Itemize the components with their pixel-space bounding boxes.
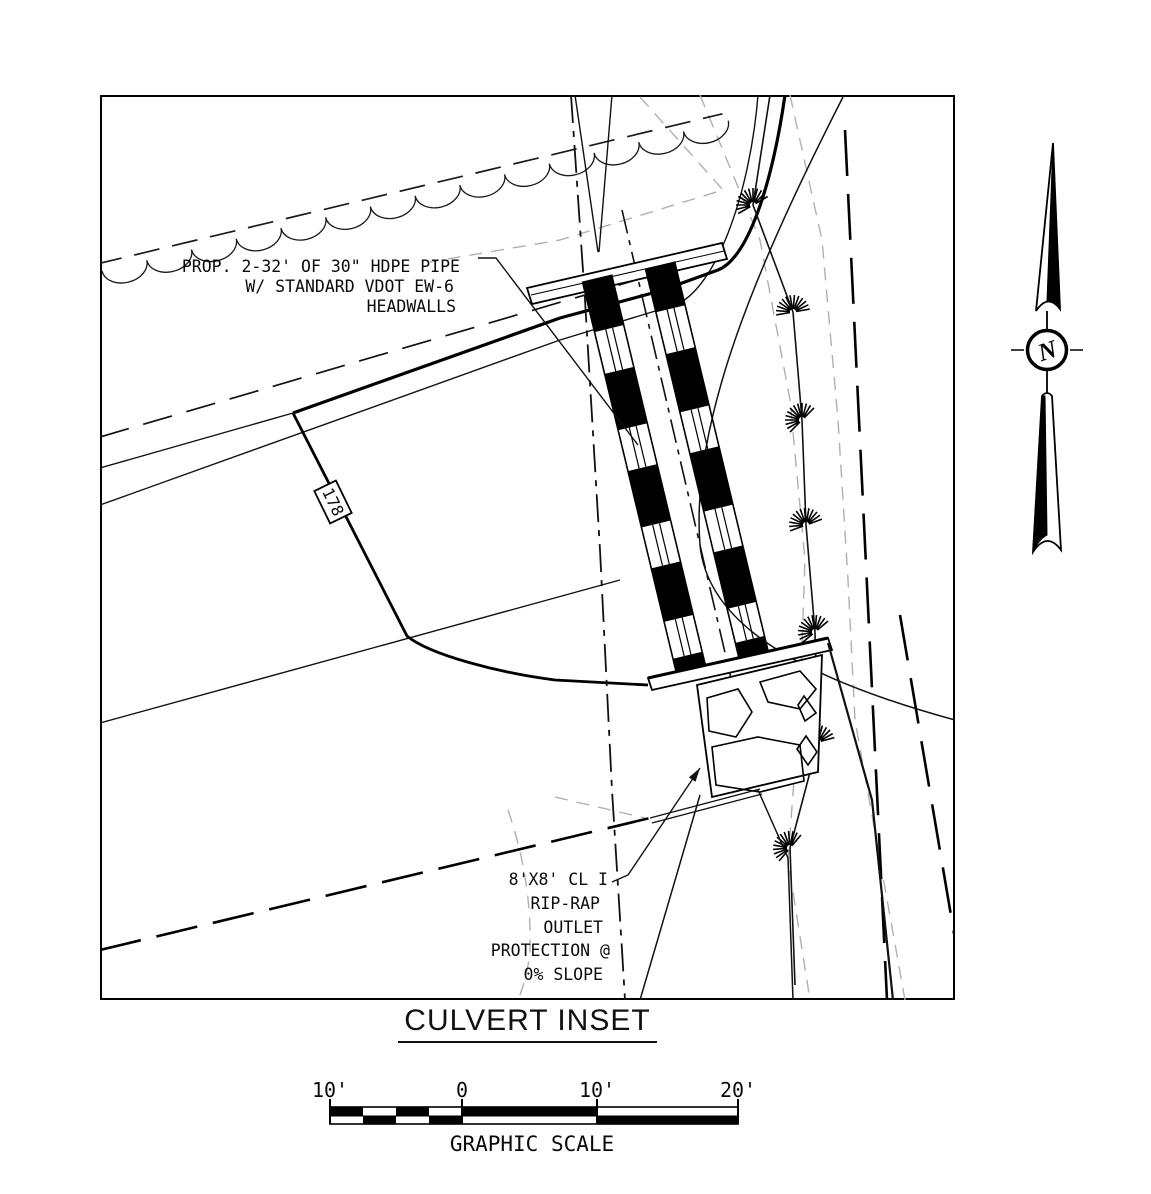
- north-needle-top: [1036, 143, 1060, 311]
- scale-tick-label-2: 10': [579, 1078, 615, 1102]
- edge-lines: [100, 95, 758, 723]
- riprap-label-line4: PROTECTION @: [491, 941, 610, 960]
- plan-view: PROP. 2-32' OF 30" HDPE PIPE W/ STANDARD…: [100, 95, 955, 1000]
- existing-contours-gray: [430, 95, 905, 1000]
- riprap-label-line1: 8'X8' CL I: [509, 870, 608, 889]
- stream-centerline: [571, 95, 625, 1000]
- scale-tick-label-0: 10': [312, 1078, 348, 1102]
- culvert-inset-sheet: PROP. 2-32' OF 30" HDPE PIPE W/ STANDARD…: [0, 0, 1151, 1194]
- annotations: PROP. 2-32' OF 30" HDPE PIPE W/ STANDARD…: [182, 257, 610, 984]
- compass-circle: N: [1011, 331, 1083, 370]
- scale-caption: GRAPHIC SCALE: [450, 1132, 614, 1156]
- title-block: CULVERT INSET: [100, 1004, 955, 1043]
- page-title: CULVERT INSET: [398, 1004, 656, 1043]
- pipe-label-line1: PROP. 2-32' OF 30" HDPE PIPE: [182, 257, 460, 276]
- scale-tick-label-1: 0: [456, 1078, 468, 1102]
- scale-tick-label-3: 20': [720, 1078, 756, 1102]
- riprap-label-line2: RIP-RAP: [530, 894, 600, 913]
- hdpe-pipe-left: [582, 274, 706, 678]
- headwall-top: [527, 243, 727, 304]
- road-arc: [699, 97, 955, 720]
- graphic-scale: 10' 0 10' 20' GRAPHIC SCALE: [300, 1075, 760, 1160]
- riprap-label-line3: OUTLET: [543, 918, 603, 937]
- riprap-leader-arrowhead: [689, 768, 700, 782]
- north-needle-tail: [1033, 393, 1061, 552]
- pipe-label-line2: W/ STANDARD VDOT EW-6: [245, 277, 454, 296]
- riprap-label-line5: 0% SLOPE: [524, 965, 603, 984]
- north-arrow: N: [1003, 133, 1095, 563]
- pipe-label-line3: HEADWALLS: [367, 297, 456, 316]
- scale-bar: [330, 1099, 738, 1124]
